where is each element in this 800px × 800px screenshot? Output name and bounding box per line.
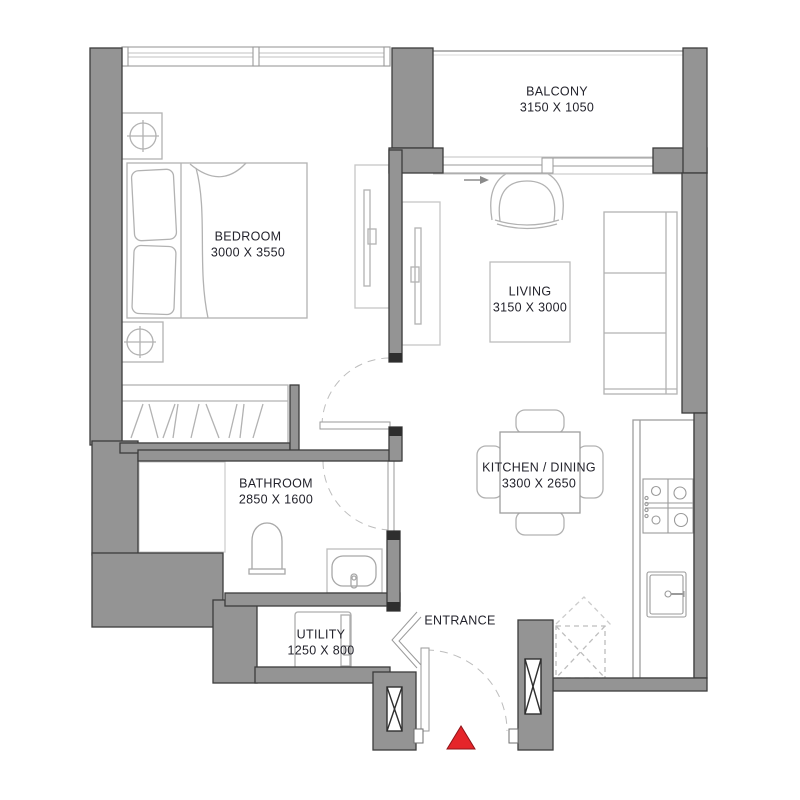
wall xyxy=(90,48,122,445)
balcony-railing xyxy=(433,51,707,55)
appliance-space xyxy=(556,597,611,678)
wall xyxy=(694,413,707,678)
wardrobe-hangers xyxy=(122,385,288,443)
wall xyxy=(92,441,138,555)
wall xyxy=(682,173,707,413)
washing-machine-icon xyxy=(295,612,351,669)
wall xyxy=(290,385,299,453)
basin-icon xyxy=(327,549,382,593)
wall xyxy=(553,678,707,691)
nightstand xyxy=(119,322,163,362)
ceiling-lamp-icon xyxy=(127,120,159,152)
gas-hob-icon xyxy=(643,479,693,533)
toilet-icon xyxy=(249,523,285,574)
dining-table xyxy=(500,432,580,513)
sofa xyxy=(604,212,677,394)
coffee-table xyxy=(490,262,570,342)
ceiling-lamp-icon xyxy=(124,326,156,358)
kitchen-counter xyxy=(633,420,694,678)
slide-direction-arrow-icon xyxy=(464,176,489,184)
shower-area xyxy=(139,462,225,552)
wall xyxy=(387,531,400,611)
wall xyxy=(392,48,433,148)
bathroom-door xyxy=(323,461,394,532)
nightstand xyxy=(122,113,162,159)
wall xyxy=(683,48,707,173)
floor-plan: BEDROOM 3000 X 3550 BALCONY 3150 X 1050 … xyxy=(0,0,800,800)
utility-bifold-door xyxy=(392,612,421,668)
sliding-panel xyxy=(402,202,440,345)
double-bed xyxy=(127,163,307,318)
bedroom-window xyxy=(122,47,390,66)
sliding-balcony-door xyxy=(433,157,683,184)
sliding-panel xyxy=(355,165,389,308)
entrance-door xyxy=(421,648,507,731)
wall xyxy=(255,667,390,683)
wall xyxy=(389,150,402,362)
floor-plan-drawing xyxy=(0,0,800,800)
wall xyxy=(225,593,400,606)
entrance-marker-icon xyxy=(447,726,475,749)
walls xyxy=(90,48,707,750)
wall xyxy=(92,553,223,627)
armchair xyxy=(491,169,564,229)
kitchen-sink-icon xyxy=(647,572,686,617)
wall xyxy=(213,600,257,683)
wall xyxy=(138,450,400,461)
bedroom-door xyxy=(320,358,390,429)
